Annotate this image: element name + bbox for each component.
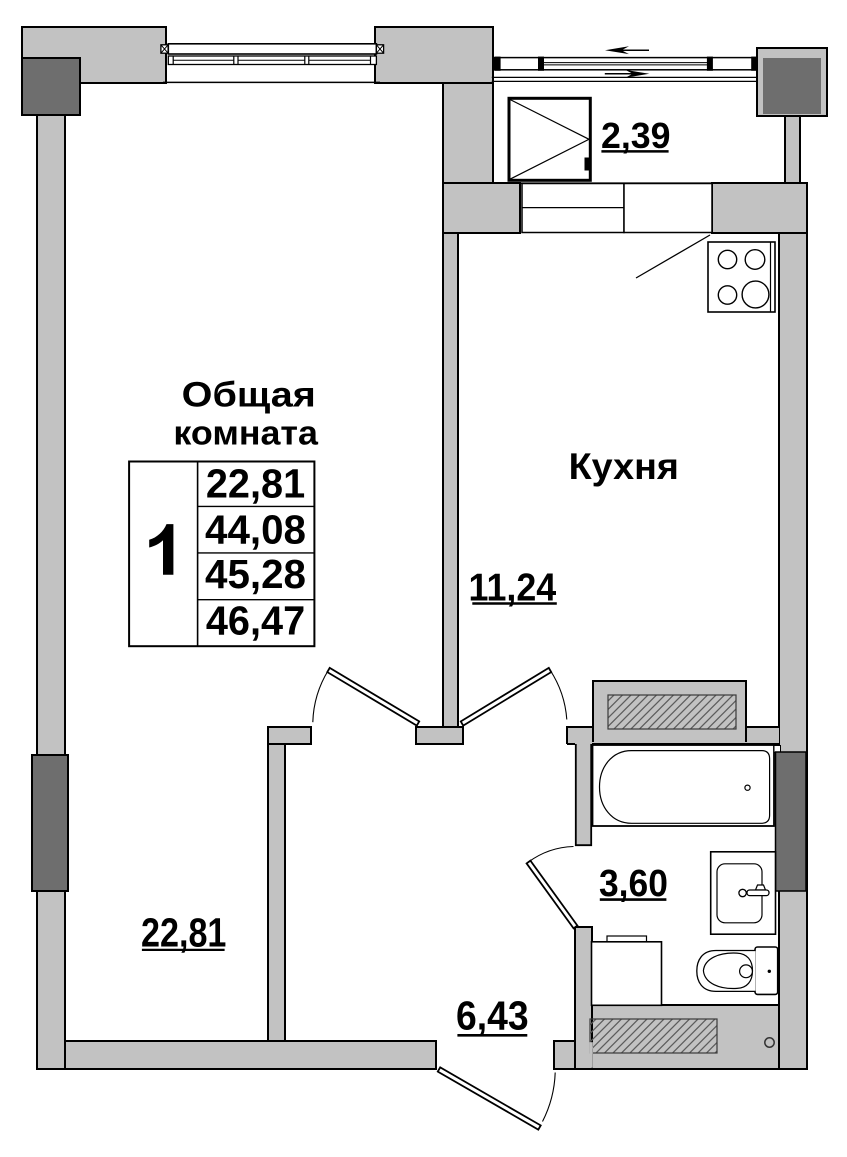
svg-text:45,28: 45,28	[205, 551, 306, 597]
svg-text:2,39: 2,39	[601, 115, 671, 156]
svg-text:Общая: Общая	[182, 375, 316, 414]
svg-text:Кухня: Кухня	[569, 445, 679, 487]
svg-text:6,43: 6,43	[456, 993, 529, 1039]
svg-text:44,08: 44,08	[205, 507, 306, 553]
svg-text:46,47: 46,47	[206, 598, 305, 644]
svg-text:комната: комната	[173, 415, 318, 453]
svg-text:22,81: 22,81	[206, 461, 305, 507]
svg-text:22,81: 22,81	[141, 910, 226, 956]
